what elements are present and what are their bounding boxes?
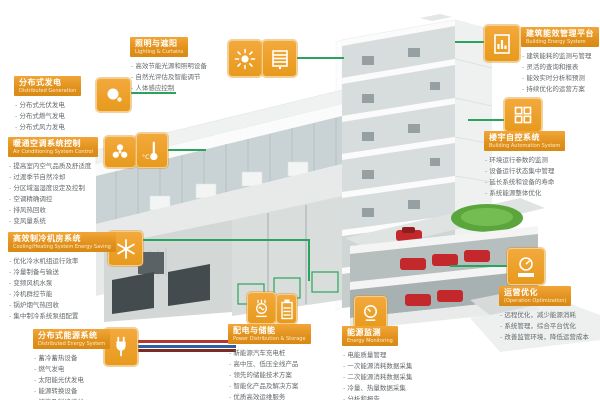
callout-power-distribution: 配电与储能 Power Distribution & Storage 新能源汽车… — [228, 324, 336, 400]
list-item: 冷量制备与输送 — [9, 267, 116, 278]
list-item: 系统管理，综合平台优化 — [500, 321, 599, 332]
section-subtitle: Distributed Energy System — [38, 341, 105, 347]
callout-energy-monitoring: 能源监测 Energy Monitoring 电能质量管理一次能源消耗数据采集二… — [342, 326, 432, 400]
connector-line — [166, 149, 206, 151]
battery-icon — [276, 294, 297, 324]
blinds-icon — [262, 40, 297, 77]
list-item: 分布式燃气发电 — [15, 111, 109, 122]
list-item: 锅炉烟气热回收 — [9, 300, 116, 311]
callout-distributed-generation: 分布式发电 Distributed Generation 分布式光伏发电分布式燃… — [14, 76, 109, 133]
section-title: 楼宇自控系统 — [489, 133, 560, 143]
list-item: 系统能源整体优化 — [485, 188, 596, 199]
callout-operation-optimization: 运营优化 (Operation Optimization) 远程优化，减少能源消… — [499, 286, 599, 343]
section-items: 分布式光伏发电分布式燃气发电分布式风力发电 — [15, 100, 109, 133]
connector-line — [141, 239, 309, 241]
callout-chiller-plant: 高效制冷机房系统 Cooling/Heating System Energy S… — [8, 232, 116, 322]
list-item: 环境运行参数的监测 — [485, 155, 596, 166]
list-item: 分布式光伏发电 — [15, 100, 109, 111]
connector-line — [468, 119, 505, 121]
section-header: 楼宇自控系统 Building Automation System — [484, 131, 565, 151]
thermometer-icon: °C — [136, 133, 168, 168]
list-item: 集中制冷系统泵组配置 — [9, 311, 116, 322]
window-grid-icon — [504, 98, 542, 132]
list-item: 二次能源消耗数据采集 — [343, 372, 432, 383]
list-item: 燃气发电 — [34, 364, 133, 375]
section-subtitle: Lighting & Curtains — [135, 49, 183, 55]
section-header: 运营优化 (Operation Optimization) — [499, 286, 571, 306]
callout-energy-platform: 建筑能效管理平台 Building Energy System 建筑能耗的监测与… — [521, 27, 600, 95]
pipe-red — [136, 340, 236, 343]
list-item: 灵活的查询和报表 — [522, 62, 600, 73]
list-item: 冷量、热量数据采集 — [343, 383, 432, 394]
section-header: 分布式能源系统 Distributed Energy System — [33, 329, 110, 349]
section-header: 能源监测 Energy Monitoring — [342, 326, 398, 346]
section-title: 高效制冷机房系统 — [13, 234, 111, 244]
section-title: 能源监测 — [347, 328, 393, 338]
report-chart-icon — [484, 25, 520, 62]
section-header: 暖通空调系统控制 Air Conditioning System Control — [8, 137, 98, 157]
pipe-dark — [136, 349, 236, 352]
section-items: 高效节能光源和照明设备自然光评估及智能调节人体感应控制 — [131, 61, 230, 94]
list-item: 能源转换设备 — [34, 386, 133, 397]
connector-line — [450, 265, 508, 267]
section-header: 配电与储能 Power Distribution & Storage — [228, 324, 311, 344]
callout-distributed-energy: 分布式能源系统 Distributed Energy System 蓄冷蓄热设备… — [33, 329, 133, 400]
list-item: 蓄冷蓄热设备 — [34, 353, 133, 364]
connector-line — [296, 57, 344, 59]
section-title: 分布式能源系统 — [38, 331, 105, 341]
list-item: 领先的储能技术方案 — [229, 370, 336, 381]
list-item: 持续优化的运营方案 — [522, 84, 600, 95]
connector-line — [308, 239, 310, 281]
list-item: 新能源汽车充电桩 — [229, 348, 336, 359]
section-items: 远程优化，减少能源消耗系统管理，综合平台优化改善监管环境，降低运营成本 — [500, 310, 599, 343]
list-item: 优质高效运维服务 — [229, 392, 336, 400]
list-item: 能效实时分析和预测 — [522, 73, 600, 84]
section-subtitle: Energy Monitoring — [347, 338, 393, 344]
section-header: 分布式发电 Distributed Generation — [14, 76, 81, 96]
list-item: 高中压、低压全线产品 — [229, 359, 336, 370]
list-item: 延长系统和设备的寿命 — [485, 177, 596, 188]
section-items: 环境运行参数的监测设备运行状态集中管理延长系统和设备的寿命系统能源整体优化 — [485, 155, 596, 199]
transformer-icon — [247, 292, 276, 324]
section-title: 分布式发电 — [19, 78, 76, 88]
list-item: 冷机群控节能 — [9, 289, 116, 300]
section-items: 提高室内空气品质及舒适度过渡季节自然冷却分区域温湿度设定及控制空调精确调控排风热… — [9, 161, 113, 227]
list-item: 太阳能光伏发电 — [34, 375, 133, 386]
list-item: 电能质量管理 — [343, 350, 432, 361]
callout-hvac-control: 暖通空调系统控制 Air Conditioning System Control… — [8, 137, 113, 227]
section-subtitle: Power Distribution & Storage — [233, 336, 306, 342]
list-item: 空调精确调控 — [9, 194, 113, 205]
list-item: 分区域温湿度设定及控制 — [9, 183, 113, 194]
list-item: 分析和报告 — [343, 394, 432, 400]
list-item: 人体感应控制 — [131, 83, 230, 94]
gauge-medal-icon — [507, 248, 545, 285]
list-item: 建筑能耗的监测与管理 — [522, 51, 600, 62]
sun-icon — [228, 40, 262, 77]
section-title: 运营优化 — [504, 288, 566, 298]
callout-lighting-shading: 照明与遮阳 Lighting & Curtains 高效节能光源和照明设备自然光… — [130, 37, 230, 94]
list-item: 高效节能光源和照明设备 — [131, 61, 230, 72]
section-subtitle: Cooling/Heating System Energy Saving — [13, 244, 111, 250]
svg-text:°C: °C — [142, 153, 150, 161]
list-item: 变风量系统 — [9, 216, 113, 227]
list-item: 分布式风力发电 — [15, 122, 109, 133]
meter-icon — [354, 296, 387, 329]
section-subtitle: Air Conditioning System Control — [13, 149, 93, 155]
list-item: 设备运行状态集中管理 — [485, 166, 596, 177]
list-item: 远程优化，减少能源消耗 — [500, 310, 599, 321]
section-title: 建筑能效管理平台 — [526, 29, 594, 39]
section-header: 照明与遮阳 Lighting & Curtains — [130, 37, 188, 57]
section-title: 照明与遮阳 — [135, 39, 183, 49]
list-item: 智能化产品及解决方案 — [229, 381, 336, 392]
list-item: 优化冷水机组运行效率 — [9, 256, 116, 267]
section-items: 电能质量管理一次能源消耗数据采集二次能源消耗数据采集冷量、热量数据采集分析和报告 — [343, 350, 432, 400]
section-subtitle: Building Energy System — [526, 39, 594, 45]
section-items: 优化冷水机组运行效率冷量制备与输送变频风机水泵冷机群控节能锅炉烟气热回收集中制冷… — [9, 256, 116, 322]
pipe-blue — [136, 345, 236, 348]
section-title: 暖通空调系统控制 — [13, 139, 93, 149]
list-item: 自然光评估及智能调节 — [131, 72, 230, 83]
section-subtitle: Building Automation System — [489, 143, 560, 149]
section-items: 建筑能耗的监测与管理灵活的查询和报表能效实时分析和预测持续优化的运营方案 — [522, 51, 600, 95]
list-item: 排风热回收 — [9, 205, 113, 216]
section-header: 建筑能效管理平台 Building Energy System — [521, 27, 599, 47]
section-items: 新能源汽车充电桩高中压、低压全线产品领先的储能技术方案智能化产品及解决方案优质高… — [229, 348, 336, 400]
section-title: 配电与储能 — [233, 326, 306, 336]
section-items: 蓄冷蓄热设备燃气发电太阳能光伏发电能源转换设备储能及削峰填谷 — [34, 353, 133, 400]
connector-line — [455, 41, 485, 43]
list-item: 变频风机水泵 — [9, 278, 116, 289]
section-subtitle: (Operation Optimization) — [504, 298, 566, 304]
list-item: 改善监管环境，降低运营成本 — [500, 332, 599, 343]
list-item: 过渡季节自然冷却 — [9, 172, 113, 183]
section-subtitle: Distributed Generation — [19, 88, 76, 94]
list-item: 提高室内空气品质及舒适度 — [9, 161, 113, 172]
list-item: 一次能源消耗数据采集 — [343, 361, 432, 372]
callout-building-automation: 楼宇自控系统 Building Automation System 环境运行参数… — [484, 131, 596, 199]
section-header: 高效制冷机房系统 Cooling/Heating System Energy S… — [8, 232, 116, 252]
infographic-canvas: °C 分布式发电 Distributed Generation 分布式光伏发电分… — [0, 0, 600, 400]
